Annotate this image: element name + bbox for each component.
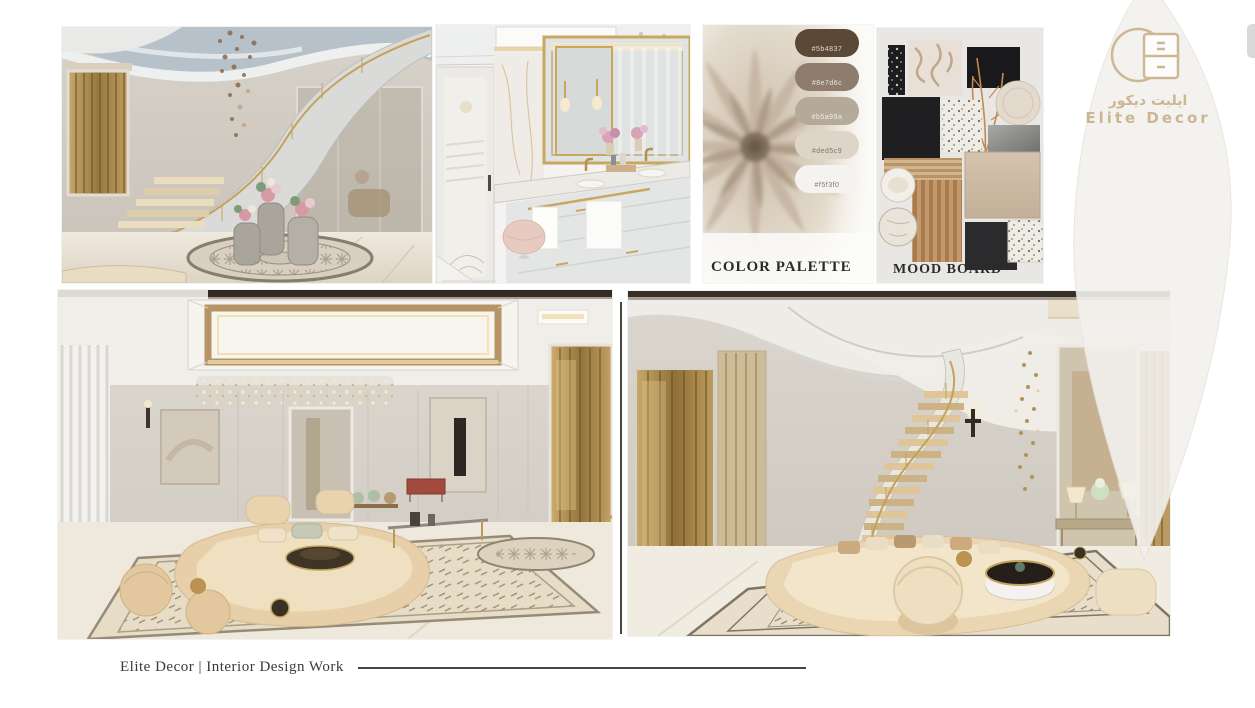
coffered-ceiling (58, 290, 612, 385)
color-palette-panel: #5b4837 #8e7d6c #b5a99a #ded5c9 #f5f3f0 … (703, 25, 873, 283)
caption-text: Elite Decor | Interior Design Work (120, 659, 344, 676)
render-living-hall-right (628, 291, 1170, 636)
palette-swatch: #f5f3f0 (795, 165, 859, 193)
palette-swatch: #ded5c9 (795, 131, 859, 159)
palette-swatch: #8e7d6c (795, 63, 859, 91)
portfolio-page: #5b4837 #8e7d6c #b5a99a #ded5c9 #f5f3f0 … (0, 0, 1255, 708)
material-collage (877, 28, 1043, 283)
grey-panel-sample (988, 125, 1040, 155)
palette-swatch: #5b4837 (795, 29, 859, 57)
render-bathroom (436, 25, 690, 283)
image-divider-line (620, 302, 622, 634)
marble-wall (494, 53, 544, 195)
cream-plate (996, 81, 1040, 125)
gold-elevator (64, 63, 132, 195)
doorway-hall (436, 67, 494, 283)
caption-rule (358, 667, 806, 669)
beige-leather-sample (965, 152, 1040, 218)
round-armchair (894, 557, 962, 635)
marble-disc (879, 208, 917, 246)
palette-swatch: #b5a99a (795, 97, 859, 125)
footer-caption: Elite Decor | Interior Design Work (120, 659, 806, 676)
black-square-sample (882, 97, 940, 160)
cabinet-in-circle-icon (1102, 24, 1194, 86)
color-palette-label: COLOR PALETTE (711, 259, 852, 276)
logo-arabic-name: ايليت ديكور (1068, 93, 1228, 109)
elite-decor-logo: ايليت ديكور Elite Decor (1068, 24, 1228, 149)
mood-board-panel: MOOD BOARD (877, 28, 1043, 283)
gold-elevator-mirror (550, 345, 612, 525)
white-bowl (881, 168, 915, 202)
terrazzo-sample (942, 100, 982, 152)
mood-board-label: MOOD BOARD (893, 262, 1002, 278)
terrazzo-sample-small (1008, 220, 1043, 262)
dark-terrazzo-sample (888, 45, 905, 95)
wood-slat-panel (912, 180, 962, 262)
page-edge-strip (1247, 24, 1255, 58)
render-living-hall-left (58, 290, 612, 639)
render-staircase-foyer (62, 27, 432, 283)
marble-sample (908, 40, 962, 96)
drum-coffee-table (986, 561, 1054, 600)
logo-english-name: Elite Decor (1068, 109, 1228, 127)
